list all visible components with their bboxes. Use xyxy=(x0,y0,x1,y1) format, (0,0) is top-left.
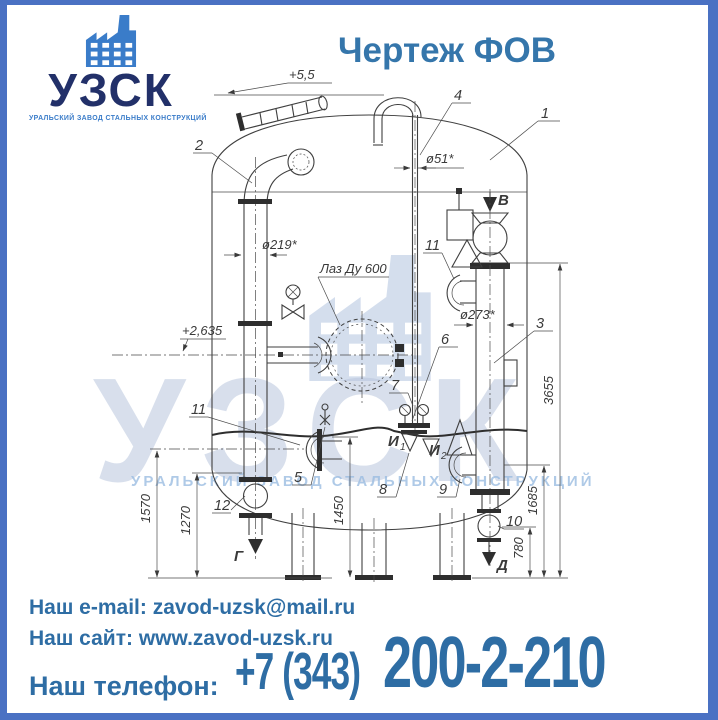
section-arrow-d xyxy=(482,552,496,566)
callout-1: 1 xyxy=(541,106,549,122)
dim-1450: 1450 xyxy=(331,495,346,525)
dome-nozzle xyxy=(236,95,329,131)
email-label: Наш e-mail: xyxy=(29,596,147,619)
internal-label-i1-sub: 1 xyxy=(400,442,406,453)
phone-number: 200-2-210 xyxy=(383,621,605,707)
dim-3655: 3655 xyxy=(541,375,556,405)
section-label-b: В xyxy=(498,192,509,209)
callout-5: 5 xyxy=(294,470,303,486)
dim-1570: 1570 xyxy=(138,493,153,523)
callout-11-left: 11 xyxy=(191,402,206,418)
callout-6: 6 xyxy=(441,332,450,348)
callout-3: 3 xyxy=(536,316,544,332)
dim-780: 780 xyxy=(511,537,526,559)
internal-label-i2: И xyxy=(429,442,441,459)
email-value: zavod-uzsk@mail.ru xyxy=(153,596,356,619)
callout-2: 2 xyxy=(194,138,203,154)
section-label-d: Д xyxy=(495,557,508,574)
technical-drawing: +5,5 ø51* ø219* ø273* Лаз Ду 600 +2,635 xyxy=(92,63,637,598)
manhole-label: Лаз Ду 600 xyxy=(319,261,387,276)
callout-8: 8 xyxy=(379,482,387,498)
internal-label-i2-sub: 2 xyxy=(440,451,447,462)
dim-dia-vent: ø51* xyxy=(426,151,454,166)
contact-email-line: Наш e-mail: zavod-uzsk@mail.ru xyxy=(29,596,355,620)
gate-valve xyxy=(282,285,304,319)
drawing-card: УЗСК УРАЛЬСКИЙ ЗАВОД СТАЛЬНЫХ КОНСТРУКЦИ… xyxy=(0,0,718,720)
dim-elevation-manhole: +2,635 xyxy=(182,323,223,338)
dim-1270: 1270 xyxy=(178,505,193,535)
left-inlet-pipe xyxy=(238,149,331,559)
dim-elevation-top: +5,5 xyxy=(289,67,315,82)
vessel-legs xyxy=(285,508,471,582)
phone-label: Наш телефон: xyxy=(29,671,219,707)
dim-dia-left-pipe: ø219* xyxy=(262,237,298,252)
callout-10: 10 xyxy=(506,514,522,530)
section-arrow-g xyxy=(248,539,263,554)
callout-4: 4 xyxy=(454,88,462,104)
callout-9: 9 xyxy=(439,482,447,498)
dim-dia-right-pipe: ø273* xyxy=(460,307,496,322)
section-label-g: Г xyxy=(234,548,244,565)
contact-phone-line: Наш телефон: +7 (343) 200-2-210 xyxy=(29,638,629,707)
callout-12: 12 xyxy=(214,498,230,514)
callout-7: 7 xyxy=(391,378,400,394)
callout-11-right: 11 xyxy=(425,238,440,254)
distributor-line xyxy=(212,428,527,437)
dim-1685: 1685 xyxy=(525,485,540,515)
right-outlet-pipe xyxy=(447,188,517,569)
phone-area-code: +7 (343) xyxy=(235,643,360,707)
internal-label-i1: И xyxy=(388,433,400,450)
factory-icon xyxy=(82,15,140,67)
